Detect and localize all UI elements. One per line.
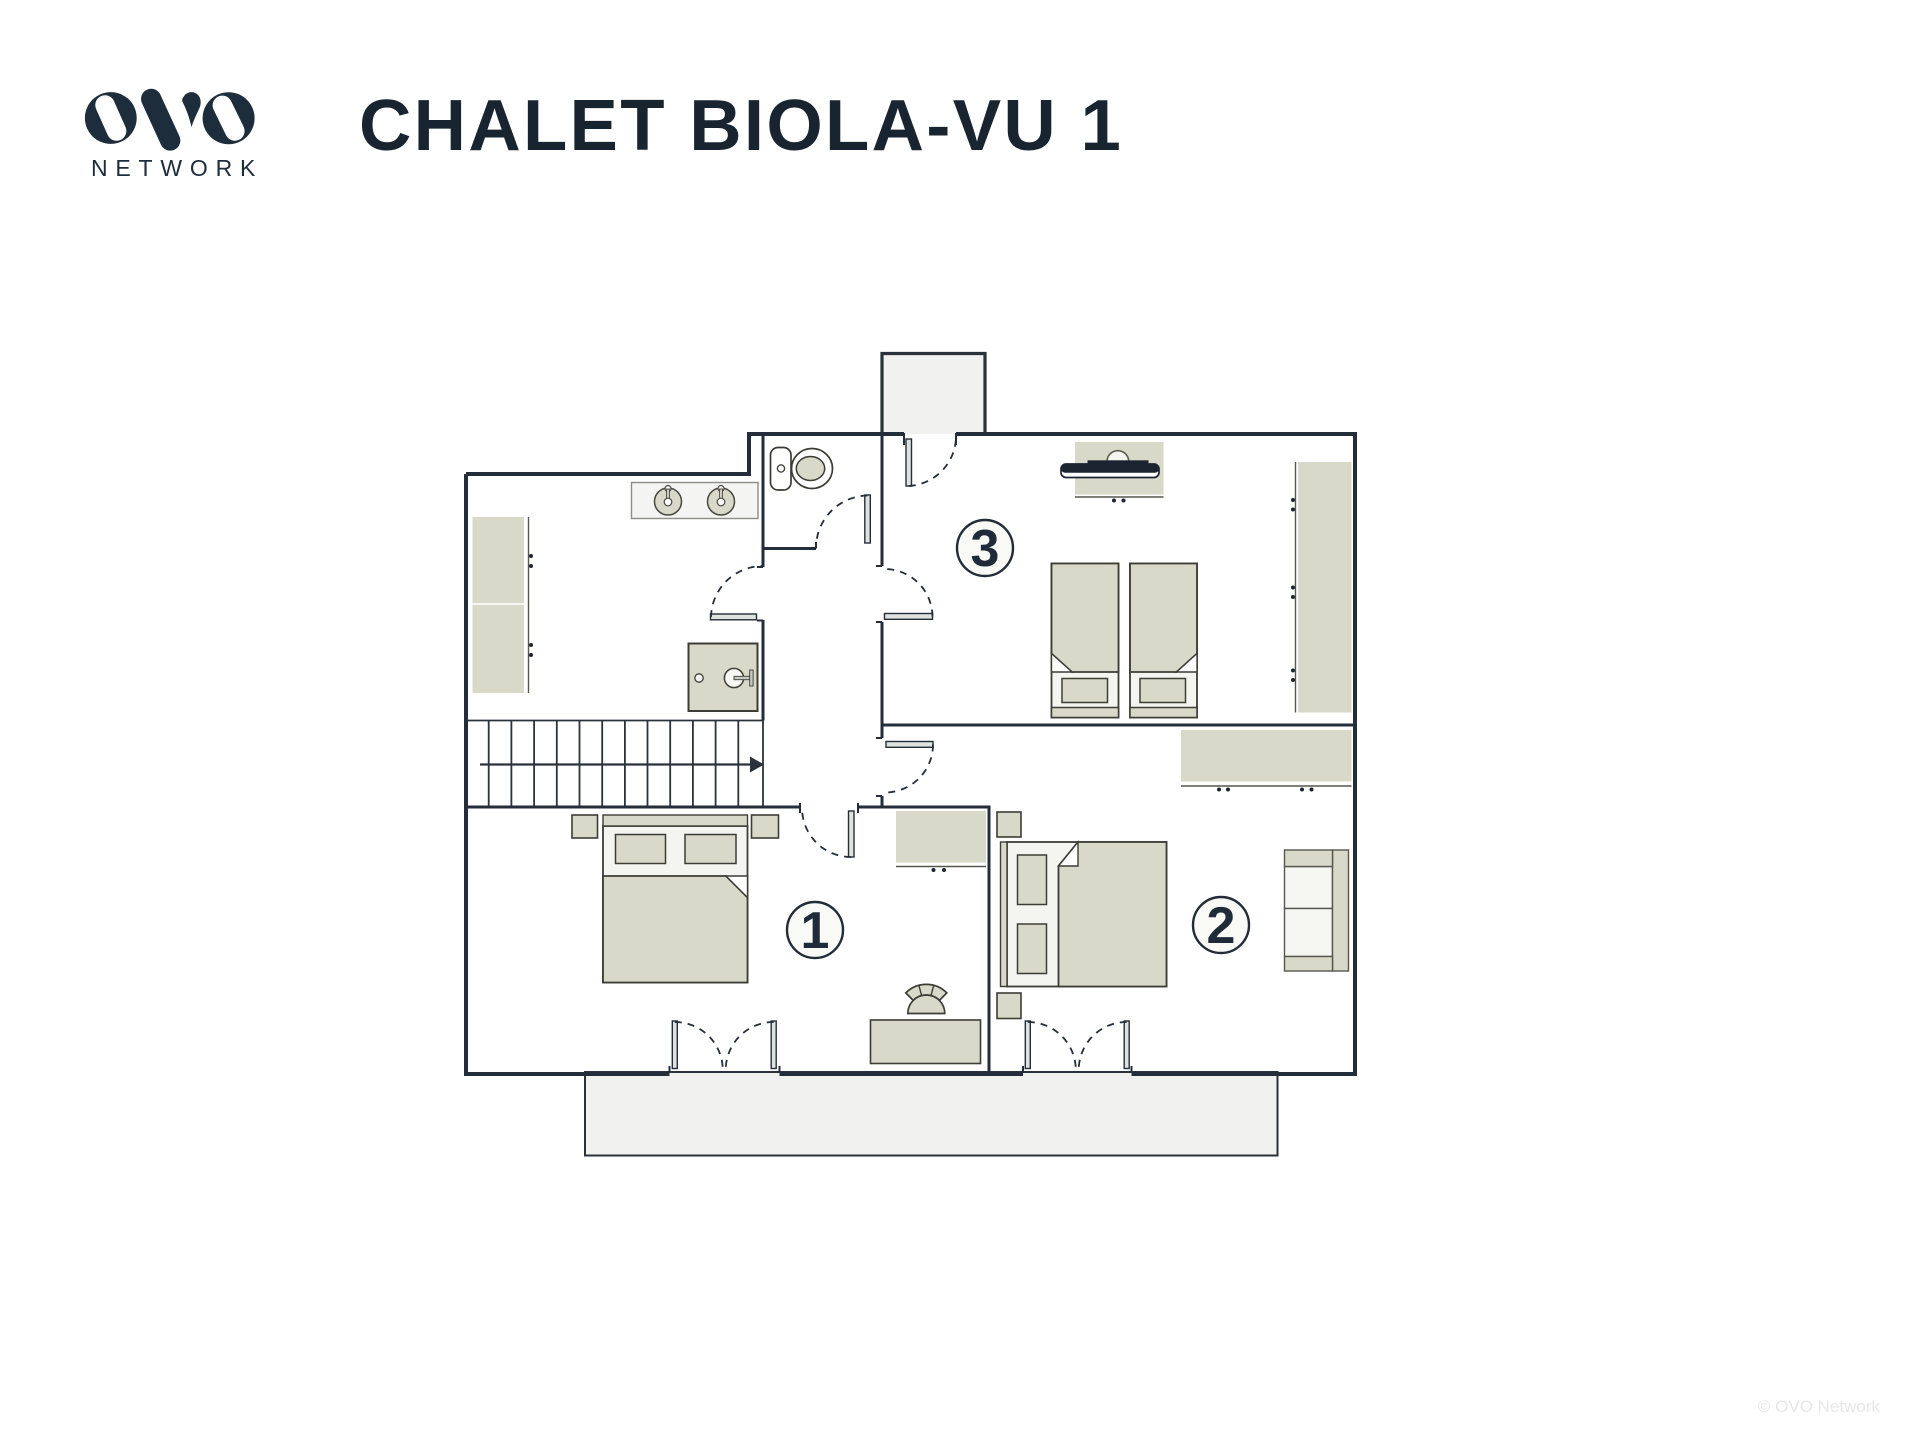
svg-text:© OVO Network: © OVO Network xyxy=(1758,1397,1881,1416)
svg-text:NETWORK: NETWORK xyxy=(91,155,263,181)
svg-text:1: 1 xyxy=(801,902,830,960)
svg-text:2: 2 xyxy=(1207,897,1236,955)
svg-text:3: 3 xyxy=(971,520,1000,578)
svg-text:CHALET BIOLA-VU 1: CHALET BIOLA-VU 1 xyxy=(359,85,1123,166)
